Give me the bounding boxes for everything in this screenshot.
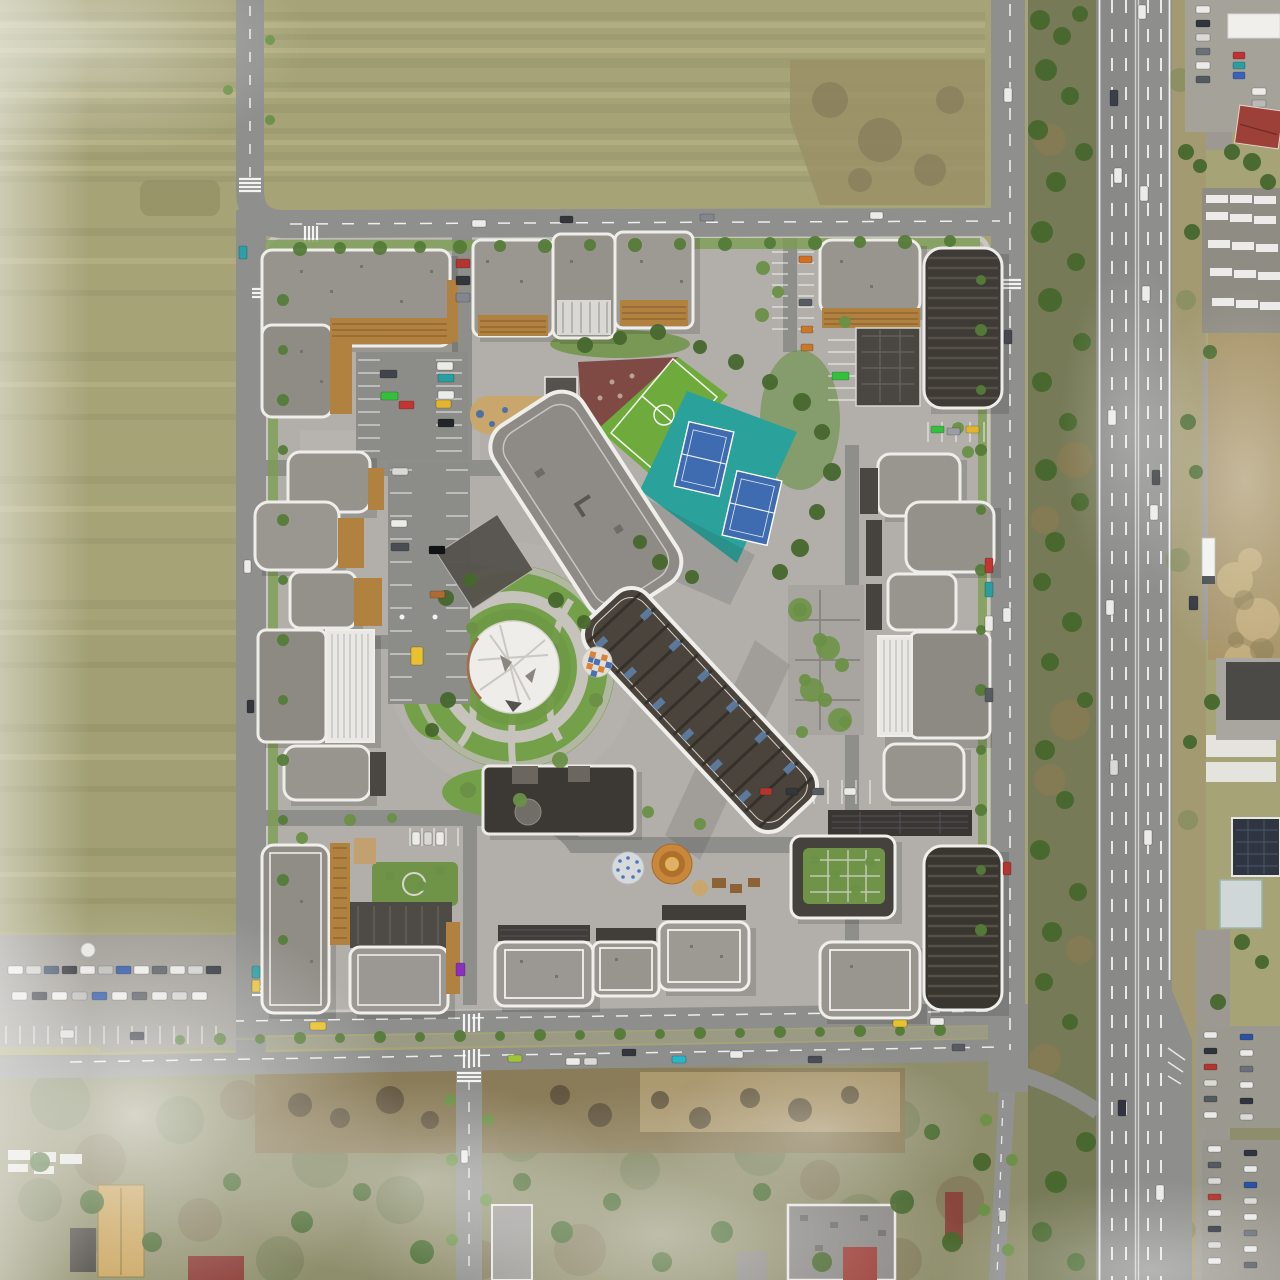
field-brown-northeast [790, 60, 985, 205]
aerial-site-render: Aerial masterplan render of residential … [0, 0, 1280, 1280]
render-canvas [0, 0, 1280, 1280]
